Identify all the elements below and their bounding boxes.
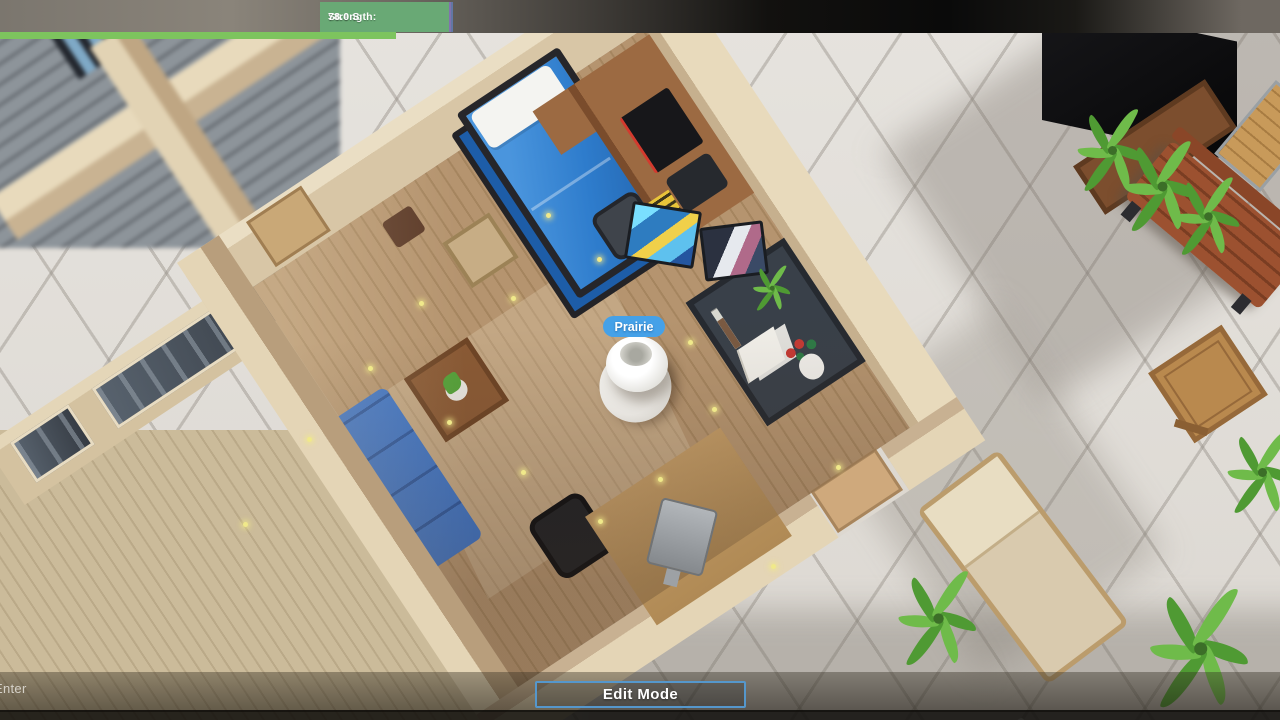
character-nametag: Prairie: [603, 316, 665, 337]
palm-trunk: [770, 286, 775, 291]
sparkle: [688, 340, 693, 345]
game-viewport: Prairie Study Time: 8.8 H Knowledge: 1,0…: [0, 0, 1280, 720]
stat-strength: Strength: 78.0 S: [320, 2, 449, 32]
monitor-screen: [702, 224, 765, 279]
sparkle: [771, 564, 776, 569]
sparkle: [712, 407, 717, 412]
sparkle: [836, 465, 841, 470]
strip-segment: [0, 32, 90, 39]
sparkle: [521, 470, 526, 475]
palm-trunk: [1108, 146, 1117, 155]
character-prairie[interactable]: [606, 336, 668, 392]
sparkle: [307, 437, 312, 442]
schedule-strip: [0, 32, 1280, 39]
sparkle: [368, 366, 373, 371]
sparkle: [419, 301, 424, 306]
sparkle: [658, 477, 663, 482]
sparkle: [597, 257, 602, 262]
stat-value: 78.0 S: [328, 11, 360, 23]
edit-mode-button[interactable]: Edit Mode: [535, 681, 746, 708]
sparkle: [598, 519, 603, 524]
palm-trunk: [1158, 182, 1168, 192]
enter-key-hint: Enter: [0, 681, 27, 696]
monitor-left[interactable]: [624, 201, 702, 269]
palm-trunk: [1258, 468, 1267, 477]
palm-trunk: [933, 613, 943, 623]
sparkle: [511, 296, 516, 301]
monitor-screen: [627, 204, 698, 265]
sparkle: [447, 420, 452, 425]
top-blur-strip: [0, 0, 1280, 33]
sparkle: [243, 522, 248, 527]
palm-trunk: [1194, 642, 1207, 655]
sparkle: [546, 213, 551, 218]
palm-trunk: [1204, 212, 1213, 221]
character-hood: [620, 342, 652, 366]
bottom-footer-strip: [0, 710, 1280, 720]
